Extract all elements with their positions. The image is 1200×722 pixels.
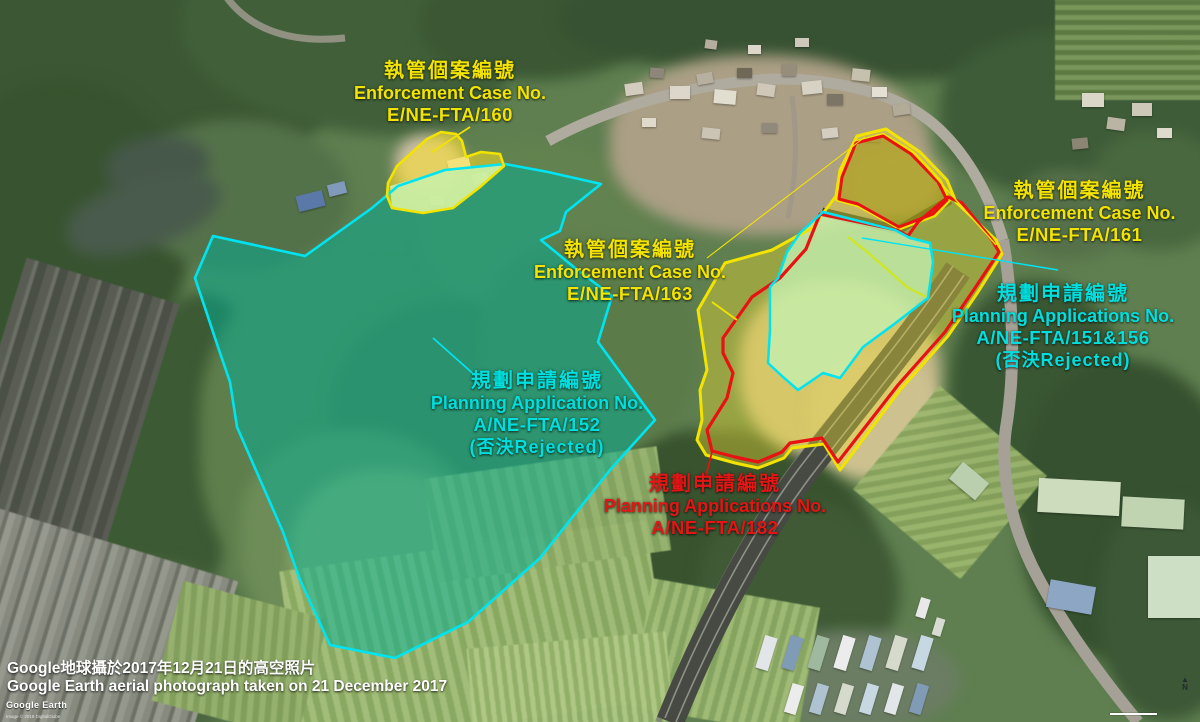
- label-text: E/NE-FTA/161: [957, 224, 1200, 246]
- building: [1157, 128, 1172, 138]
- building: [1106, 117, 1125, 131]
- building: [781, 635, 803, 671]
- building: [833, 635, 855, 671]
- building: [1037, 478, 1121, 516]
- label-text: Planning Application No.: [417, 392, 657, 414]
- label-text: A/NE-FTA/151&156: [942, 327, 1184, 349]
- building: [892, 103, 910, 116]
- label-text: 執管個案編號: [330, 60, 570, 82]
- label-text: Planning Applications No.: [942, 305, 1184, 327]
- building: [932, 617, 946, 637]
- building: [1082, 93, 1104, 107]
- label-text: 規劃申請編號: [595, 473, 835, 495]
- building: [650, 67, 665, 78]
- building: [885, 635, 907, 671]
- building: [756, 83, 775, 97]
- building: [801, 80, 822, 95]
- label-text: (否決Rejected): [942, 349, 1184, 371]
- building: [447, 156, 471, 174]
- building: [859, 683, 879, 715]
- building: [949, 462, 989, 501]
- label-text: 執管個案編號: [510, 239, 750, 261]
- building: [822, 127, 839, 139]
- label-text: Enforcement Case No.: [957, 202, 1200, 224]
- imagery-attribution: Image © 2018 DigitalGlobe: [6, 714, 60, 719]
- building: [642, 118, 656, 127]
- building: [1071, 137, 1088, 150]
- building: [1148, 556, 1200, 618]
- building: [884, 683, 904, 715]
- label-text: A/NE-FTA/182: [595, 517, 835, 539]
- building: [851, 68, 870, 82]
- building: [696, 72, 714, 86]
- building: [915, 597, 930, 619]
- building: [755, 635, 777, 671]
- building: [859, 635, 881, 671]
- north-label: N: [1182, 683, 1188, 692]
- label-text: 規劃申請編號: [942, 283, 1184, 305]
- building: [809, 683, 829, 715]
- label-planning-152: 規劃申請編號 Planning Application No. A/NE-FTA…: [417, 370, 657, 458]
- label-text: A/NE-FTA/152: [417, 414, 657, 436]
- building: [1121, 496, 1184, 529]
- building: [795, 38, 809, 47]
- building: [1046, 579, 1096, 615]
- building: [430, 196, 444, 205]
- building: [1132, 103, 1152, 116]
- photo-credit-zh: Google地球攝於2017年12月21日的高空照片: [7, 660, 447, 678]
- building: [624, 82, 643, 96]
- label-text: Enforcement Case No.: [510, 261, 750, 283]
- photo-credit-en: Google Earth aerial photograph taken on …: [7, 678, 447, 696]
- label-planning-151-156: 規劃申請編號 Planning Applications No. A/NE-FT…: [942, 283, 1184, 371]
- building: [782, 64, 796, 76]
- label-enforcement-161: 執管個案編號 Enforcement Case No. E/NE-FTA/161: [957, 180, 1200, 246]
- scale-bar: [1110, 713, 1157, 715]
- label-text: 執管個案編號: [957, 180, 1200, 202]
- building: [834, 683, 854, 715]
- aerial-map: 執管個案編號 Enforcement Case No. E/NE-FTA/160…: [0, 0, 1200, 722]
- building: [866, 133, 880, 142]
- label-enforcement-163: 執管個案編號 Enforcement Case No. E/NE-FTA/163: [510, 239, 750, 305]
- label-text: E/NE-FTA/163: [510, 283, 750, 305]
- building: [911, 635, 933, 671]
- building: [762, 123, 777, 133]
- building: [872, 87, 887, 97]
- label-planning-182: 規劃申請編號 Planning Applications No. A/NE-FT…: [595, 473, 835, 539]
- building: [909, 683, 929, 715]
- google-earth-logo: Google Earth: [6, 700, 67, 710]
- building: [704, 39, 717, 50]
- north-arrow: ▲N: [1181, 676, 1189, 692]
- label-text: Enforcement Case No.: [330, 82, 570, 104]
- label-enforcement-160: 執管個案編號 Enforcement Case No. E/NE-FTA/160: [330, 60, 570, 126]
- building: [471, 171, 489, 185]
- building: [827, 94, 843, 105]
- building: [670, 86, 690, 99]
- building: [327, 181, 347, 197]
- label-text: (否決Rejected): [417, 436, 657, 458]
- building: [701, 127, 720, 140]
- label-text: Planning Applications No.: [595, 495, 835, 517]
- building: [295, 190, 325, 212]
- building: [713, 89, 736, 105]
- building: [784, 683, 804, 715]
- label-text: E/NE-FTA/160: [330, 104, 570, 126]
- label-text: 規劃申請編號: [417, 370, 657, 392]
- building: [807, 635, 829, 671]
- photo-credit: Google地球攝於2017年12月21日的高空照片 Google Earth …: [7, 660, 447, 696]
- building: [737, 68, 752, 78]
- building: [748, 45, 761, 54]
